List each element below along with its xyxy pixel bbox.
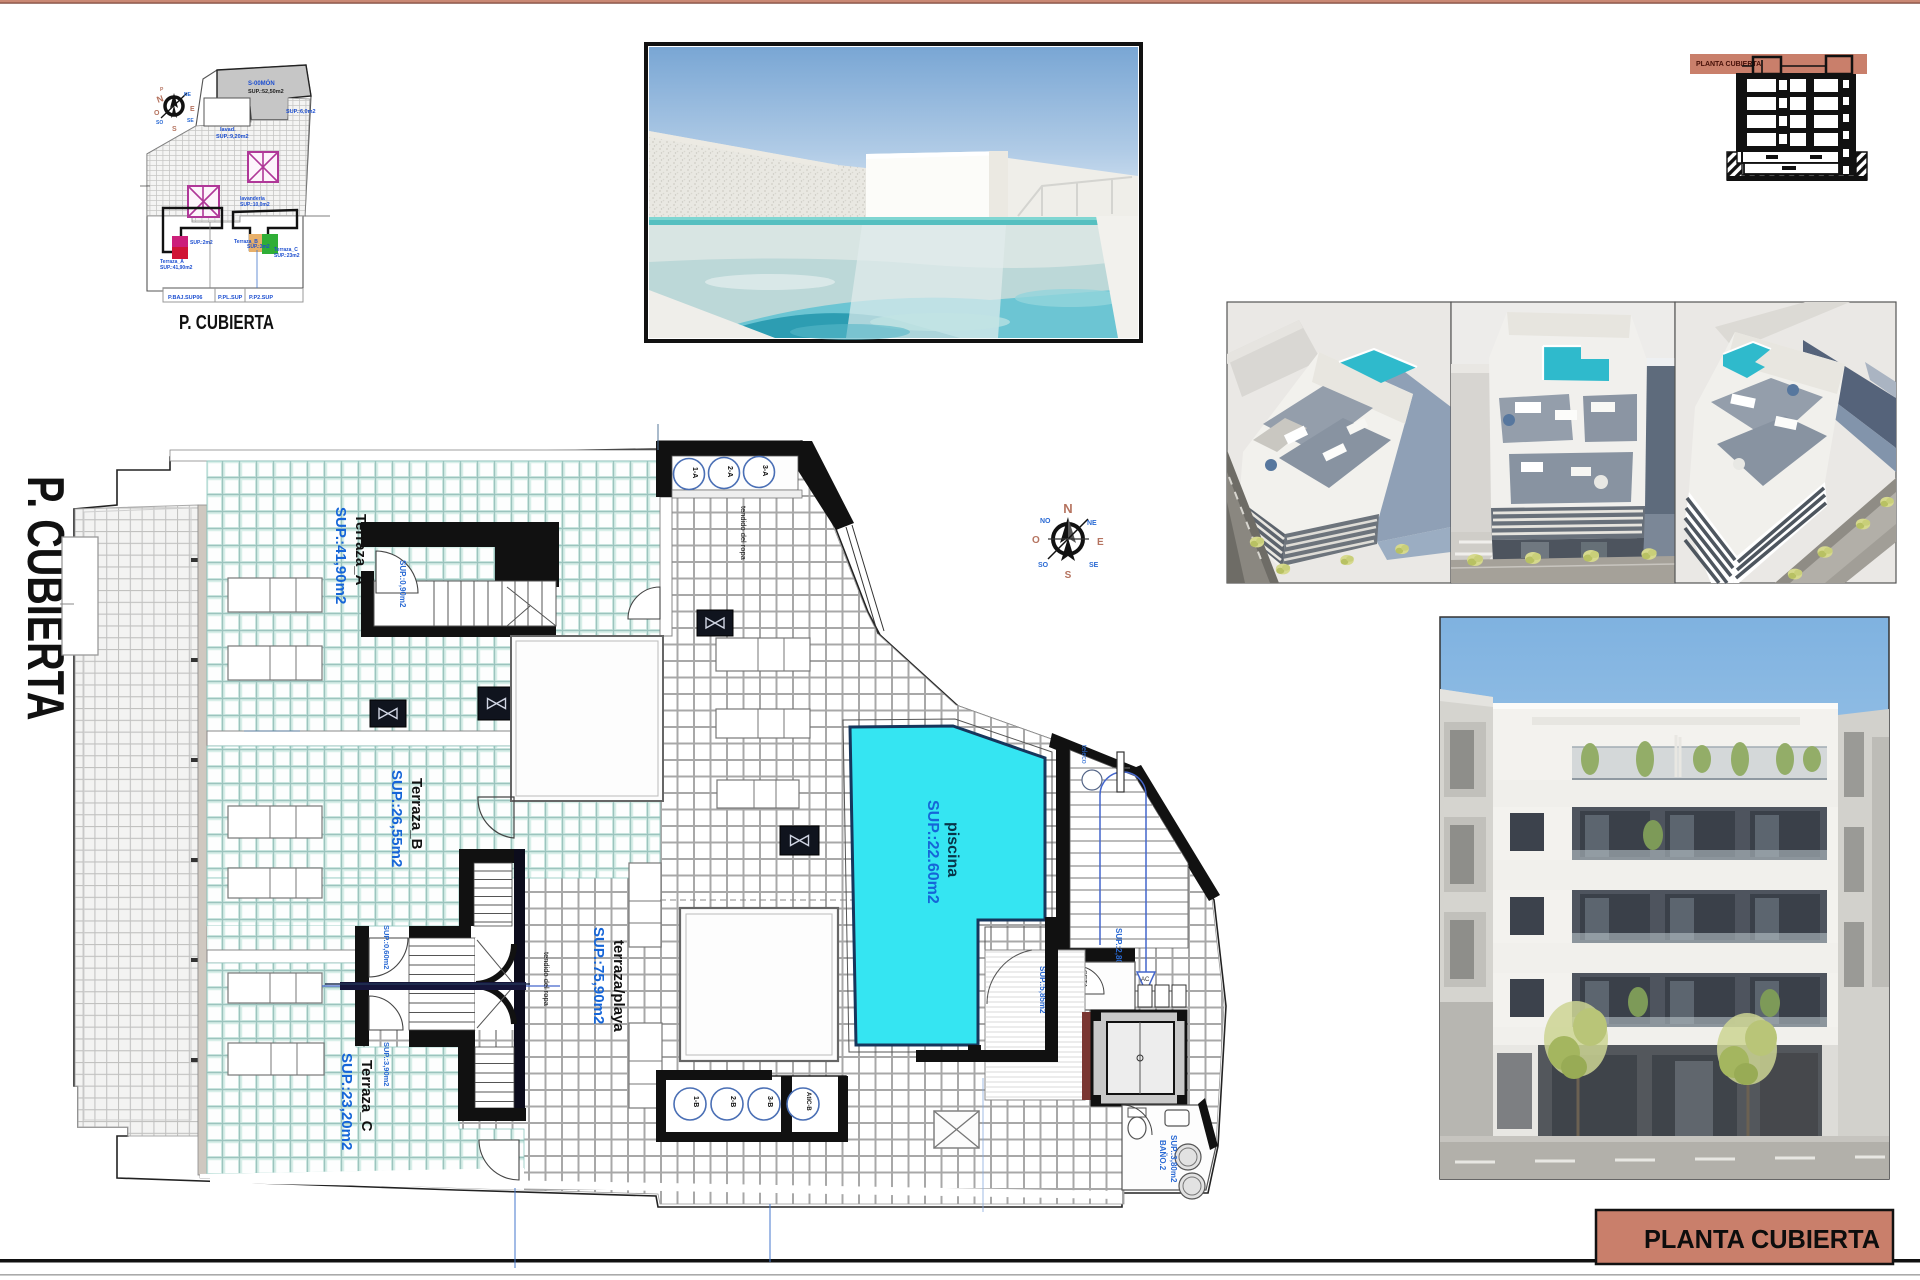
svg-text:terraza/playa: terraza/playa bbox=[610, 940, 627, 1032]
svg-text:1-A: 1-A bbox=[691, 467, 698, 478]
svg-text:SUP.:9,20m2: SUP.:9,20m2 bbox=[216, 134, 249, 140]
svg-text:P.P2.SUP: P.P2.SUP bbox=[249, 295, 273, 301]
svg-text:O: O bbox=[154, 110, 160, 117]
svg-text:SO: SO bbox=[156, 120, 163, 126]
svg-text:SE: SE bbox=[1089, 562, 1099, 569]
svg-text:SUP.:41,90m2: SUP.:41,90m2 bbox=[160, 265, 193, 271]
svg-text:SUP.:23m2: SUP.:23m2 bbox=[274, 253, 300, 259]
svg-text:2-A: 2-A bbox=[726, 466, 733, 477]
svg-text:SUP.:52,50m2: SUP.:52,50m2 bbox=[248, 89, 284, 95]
svg-text:NO: NO bbox=[1040, 518, 1051, 525]
svg-text:3-A: 3-A bbox=[761, 465, 768, 476]
svg-text:P.BAJ.SUP06: P.BAJ.SUP06 bbox=[168, 295, 202, 301]
svg-text:P: P bbox=[160, 87, 164, 93]
svg-text:S: S bbox=[1065, 570, 1072, 581]
svg-text:SUP.:23,20m2: SUP.:23,20m2 bbox=[338, 1053, 355, 1150]
svg-text:P.PL.SUP: P.PL.SUP bbox=[218, 295, 243, 301]
svg-text:SUP.:6,0m2: SUP.:6,0m2 bbox=[286, 109, 316, 115]
svg-text:Terraza_C: Terraza_C bbox=[358, 1060, 375, 1132]
svg-text:AC: AC bbox=[1141, 977, 1150, 983]
svg-text:P. CUBIERTA: P. CUBIERTA bbox=[179, 312, 274, 334]
svg-text:Terraza_A: Terraza_A bbox=[352, 514, 369, 586]
svg-text:SUP.:75,90m2: SUP.:75,90m2 bbox=[590, 927, 607, 1024]
svg-text:NE: NE bbox=[1087, 520, 1097, 527]
svg-text:N: N bbox=[155, 93, 165, 105]
svg-text:tendido del ropa: tendido del ropa bbox=[739, 506, 748, 561]
svg-text:SUP.:2m2: SUP.:2m2 bbox=[190, 240, 213, 246]
svg-text:E: E bbox=[1097, 537, 1104, 548]
svg-text:N: N bbox=[1063, 501, 1072, 516]
svg-text:SUP.:10,0m2: SUP.:10,0m2 bbox=[240, 202, 270, 208]
svg-text:NE: NE bbox=[184, 92, 192, 98]
svg-text:SUP.:3,80m2: SUP.:3,80m2 bbox=[1169, 1135, 1178, 1183]
svg-text:SUP.:0,90m2: SUP.:0,90m2 bbox=[398, 560, 407, 608]
svg-text:PLANTA CUBIERTA: PLANTA CUBIERTA bbox=[1696, 61, 1761, 68]
svg-text:E: E bbox=[190, 106, 195, 113]
svg-text:SUP.:22.60m2: SUP.:22.60m2 bbox=[924, 800, 941, 904]
svg-text:PLANTA CUBIERTA: PLANTA CUBIERTA bbox=[1644, 1224, 1880, 1254]
svg-text:lavad.: lavad. bbox=[220, 127, 236, 133]
svg-text:SUP.:3,90m2: SUP.:3,90m2 bbox=[382, 1042, 391, 1086]
svg-text:S-00MÓN: S-00MÓN bbox=[248, 79, 275, 87]
svg-text:piscina: piscina bbox=[944, 822, 961, 877]
svg-text:SE: SE bbox=[187, 118, 194, 124]
svg-text:teleco: teleco bbox=[1080, 745, 1087, 764]
svg-text:3-B: 3-B bbox=[766, 1096, 773, 1107]
svg-text:1-B: 1-B bbox=[692, 1096, 699, 1107]
svg-text:SUP.:26,55m2: SUP.:26,55m2 bbox=[388, 770, 405, 867]
svg-text:SUP.:3m2: SUP.:3m2 bbox=[247, 244, 270, 250]
svg-text:2-B: 2-B bbox=[729, 1096, 736, 1107]
svg-text:SO: SO bbox=[1038, 562, 1049, 569]
svg-text:SUP.:0,60m2: SUP.:0,60m2 bbox=[382, 925, 391, 969]
svg-text:S: S bbox=[172, 126, 177, 133]
svg-text:Terraza_B: Terraza_B bbox=[408, 778, 425, 850]
svg-text:tendido del ropa: tendido del ropa bbox=[542, 952, 551, 1007]
svg-text:AtiC-B: AtiC-B bbox=[805, 1092, 811, 1111]
svg-text:SUP.:41,90m2: SUP.:41,90m2 bbox=[332, 507, 349, 604]
svg-text:O: O bbox=[1032, 535, 1040, 546]
svg-text:BAÑO.2: BAÑO.2 bbox=[1158, 1140, 1167, 1171]
